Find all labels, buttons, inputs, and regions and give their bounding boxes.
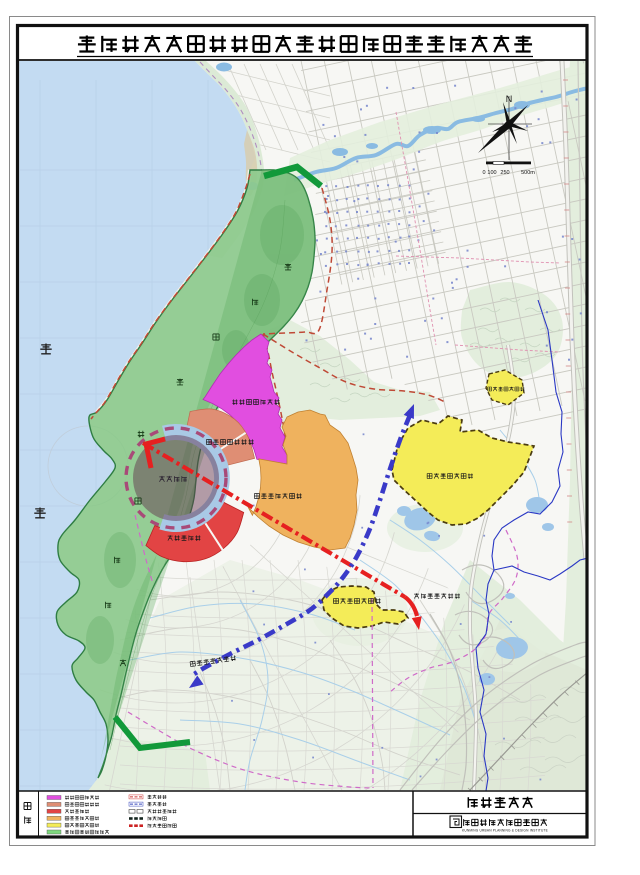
svg-text:N: N xyxy=(506,94,513,104)
svg-text:500m: 500m xyxy=(521,170,535,176)
svg-text:250: 250 xyxy=(500,170,509,176)
svg-text:100: 100 xyxy=(487,170,496,176)
svg-text:0: 0 xyxy=(482,170,485,176)
svg-text:KUNMING URBAN PLANNING & DESIG: KUNMING URBAN PLANNING & DESIGN INSTITUT… xyxy=(462,829,548,833)
